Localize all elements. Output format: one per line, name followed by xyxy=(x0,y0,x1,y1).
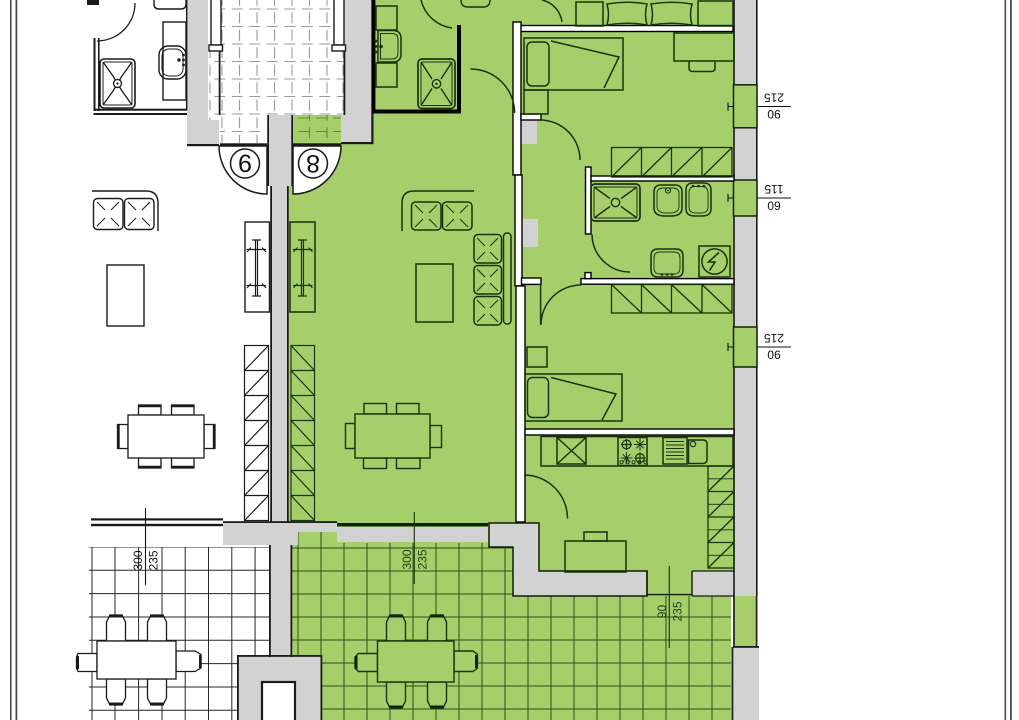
svg-text:235: 235 xyxy=(671,601,685,621)
svg-text:235: 235 xyxy=(147,550,161,570)
svg-text:235: 235 xyxy=(416,549,430,569)
svg-text:300: 300 xyxy=(131,550,145,570)
svg-text:9: 9 xyxy=(238,149,252,177)
svg-text:215: 215 xyxy=(764,331,784,345)
svg-text:215: 215 xyxy=(764,91,784,105)
svg-text:60: 60 xyxy=(767,199,781,213)
svg-text:90: 90 xyxy=(655,605,669,619)
svg-text:300: 300 xyxy=(400,549,414,569)
svg-text:8: 8 xyxy=(306,149,320,177)
svg-text:90: 90 xyxy=(767,107,781,121)
svg-text:90: 90 xyxy=(767,348,781,362)
svg-text:115: 115 xyxy=(764,182,783,196)
